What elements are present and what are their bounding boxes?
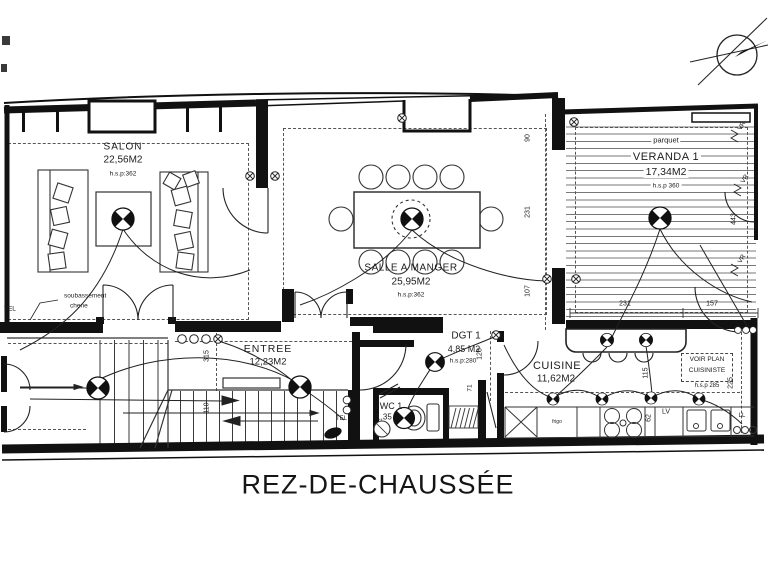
salon-area: 22,56M2 xyxy=(104,155,143,166)
radiator xyxy=(449,406,478,428)
dim-128: 128 xyxy=(477,348,484,360)
tel-left-label: TEL xyxy=(4,306,16,313)
wash-basin xyxy=(374,421,390,437)
dim-225: 225 xyxy=(728,377,735,389)
dim-90: 90 xyxy=(525,134,532,142)
veranda-floor-note: parquet xyxy=(651,136,680,145)
dgt-hsp: h.s.p:280 xyxy=(450,358,477,365)
dim-62: 62 xyxy=(646,414,653,422)
dgt-name: DGT 1 xyxy=(451,331,480,342)
lave-vaisselle-label: LV xyxy=(662,409,670,416)
sofa-right xyxy=(160,171,208,272)
entree-name: ENTREE xyxy=(244,343,293,355)
plan-title: REZ-DE-CHAUSSÉE xyxy=(241,470,514,501)
veranda-name: VERANDA 1 xyxy=(631,151,701,163)
lave-linge-label: LL xyxy=(739,413,746,419)
dim-231-wall: 231 xyxy=(525,206,532,218)
dim-157: 157 xyxy=(706,301,718,308)
salon-hsp: h.s.p:362 xyxy=(110,171,137,178)
stair-arrows xyxy=(20,385,318,426)
wc-name: WC 1 xyxy=(380,401,403,411)
entree-area: 12,23M2 xyxy=(250,357,287,368)
voir-plan-hsp: h.s.p 285 xyxy=(693,383,722,389)
wc-area: 1,35 xyxy=(376,413,392,422)
soubassement-leader xyxy=(30,300,58,320)
dim-231-veranda: 231 xyxy=(619,301,631,308)
sofa-left xyxy=(38,170,88,272)
veranda-area: 17,34M2 xyxy=(644,166,689,178)
bar-counter xyxy=(566,329,686,362)
dim-107: 107 xyxy=(525,285,532,297)
scan-marks xyxy=(1,36,10,72)
dgt-area: 4,85 M2 xyxy=(448,344,481,354)
dimension-line-veranda xyxy=(570,308,758,318)
soubassement-note-1: soubassement xyxy=(64,293,106,300)
compass-rose xyxy=(690,18,768,85)
dining-area: 25,95M2 xyxy=(392,277,431,288)
soubassement-note-2: chene xyxy=(70,303,88,310)
frigo-label: frigo xyxy=(552,419,562,425)
voir-plan-note: VOIR PLAN CUISINISTE xyxy=(681,353,733,382)
dim-315: 315 xyxy=(204,350,211,362)
dim-71: 71 xyxy=(467,384,474,391)
dining-name: SALLE A MANGER xyxy=(364,263,457,274)
cuisine-area: 11,62M2 xyxy=(537,374,575,385)
dim-443: 443 xyxy=(731,213,738,225)
tel-right-label: TEL xyxy=(336,416,347,422)
cuisine-name: CUISINE xyxy=(533,360,581,372)
veranda-hsp: h.s.p 360 xyxy=(651,183,682,190)
kitchen-counter xyxy=(505,407,757,438)
floor-plan: VOIR PLAN CUISINISTE SALON 22,56M2 h.s.p… xyxy=(0,0,768,576)
dim-115: 115 xyxy=(643,367,650,378)
dim-110: 110 xyxy=(204,402,211,413)
dining-hsp: h.s.p:362 xyxy=(398,292,425,299)
voir-plan-line1: VOIR PLAN xyxy=(690,356,725,363)
voir-plan-line2: CUISINISTE xyxy=(689,367,725,374)
salon-name: SALON xyxy=(104,142,143,153)
